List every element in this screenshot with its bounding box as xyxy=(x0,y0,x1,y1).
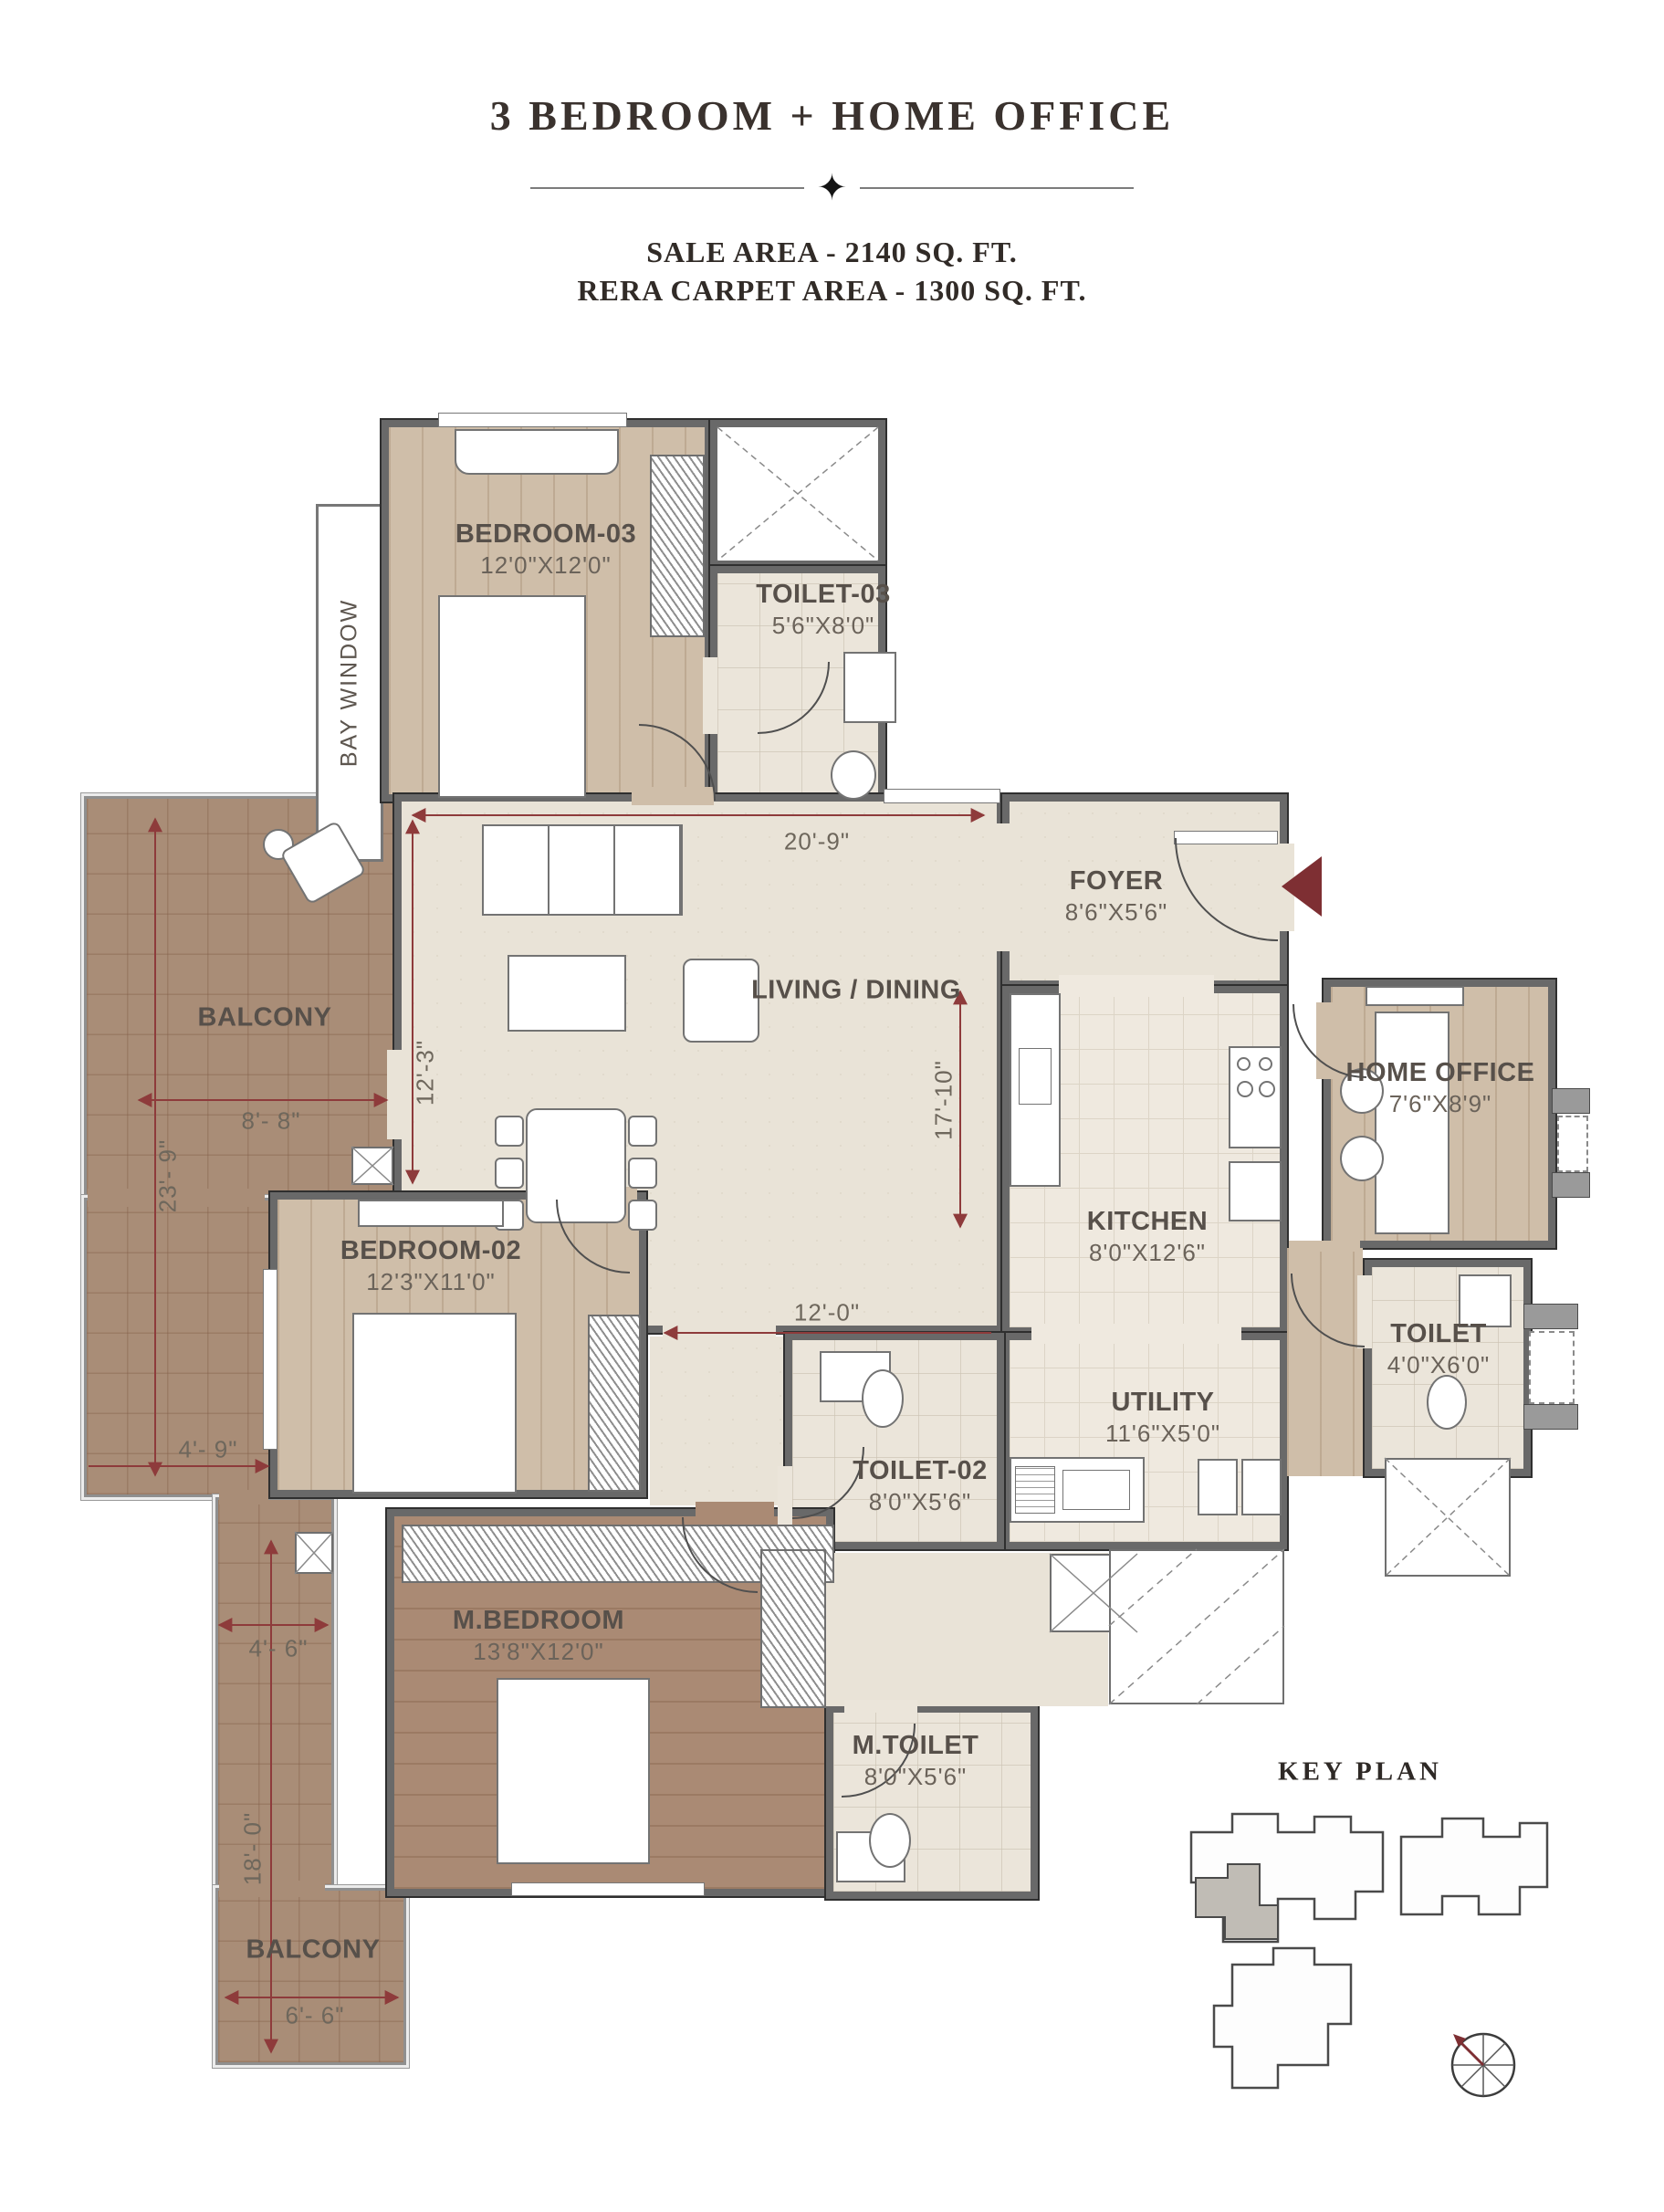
keyplan-building-3 xyxy=(1214,1948,1351,2088)
opening-foyer-kitchen xyxy=(1059,975,1214,997)
label-home-office: HOME OFFICE 7'6"X8'9" xyxy=(1346,1058,1535,1118)
wc-toilet2 xyxy=(862,1369,904,1428)
opening-home-office-door xyxy=(1316,1002,1333,1079)
room-name: BALCONY xyxy=(246,1935,381,1966)
washer xyxy=(1198,1459,1238,1515)
dining-chair xyxy=(628,1200,657,1231)
washer xyxy=(1241,1459,1282,1515)
room-name: TOILET-02 xyxy=(853,1456,987,1486)
dim-4-6: 4'- 6" xyxy=(249,1635,309,1663)
label-m-bedroom: M.BEDROOM 13'8"X12'0" xyxy=(453,1606,624,1666)
dim-18-0: 18'- 0" xyxy=(239,1812,267,1885)
compass-icon xyxy=(1452,2034,1514,2096)
room-size: 13'8"X12'0" xyxy=(453,1638,624,1666)
room-name: BEDROOM-02 xyxy=(340,1236,521,1266)
wall-stub-office-bottom xyxy=(1552,1172,1590,1198)
dim-8-8: 8'- 8" xyxy=(242,1107,301,1136)
opening-toilet-door xyxy=(1357,1275,1372,1348)
bed3 xyxy=(438,595,586,798)
duct-shaft-mbedroom xyxy=(295,1532,333,1574)
coffee-table xyxy=(508,955,626,1032)
label-toilet-02: TOILET-02 8'0"X5'6" xyxy=(853,1456,987,1516)
wardrobe-mbedroom-right xyxy=(760,1549,826,1708)
fridge xyxy=(1229,1161,1282,1221)
dining-chair xyxy=(495,1116,524,1147)
entry-door-leaf xyxy=(1174,831,1278,844)
label-bedroom-03: BEDROOM-03 12'0"X12'0" xyxy=(455,519,636,580)
sofa xyxy=(482,824,683,916)
room-name: TOILET xyxy=(1387,1319,1491,1349)
wc-toilet xyxy=(1427,1375,1467,1430)
opening-mtoilet-door xyxy=(844,1700,917,1713)
basin-toilet3 xyxy=(843,652,896,723)
room-size: 8'0"X12'6" xyxy=(1087,1239,1208,1267)
label-living-dining: LIVING / DINING xyxy=(751,976,961,1006)
office-chair xyxy=(1340,1136,1384,1181)
wall-stub-top xyxy=(1523,1304,1578,1329)
room-size: 5'6"X8'0" xyxy=(756,612,890,640)
title-divider: ✦ xyxy=(0,179,1664,197)
dim-6-6: 6'- 6" xyxy=(286,2002,345,2030)
kitchen-sink xyxy=(1019,1048,1052,1105)
armchair xyxy=(683,959,759,1043)
sale-area-text: SALE AREA - 2140 SQ. FT. xyxy=(0,236,1664,269)
label-kitchen: KITCHEN 8'0"X12'6" xyxy=(1087,1207,1208,1267)
dim-4-9: 4'- 9" xyxy=(179,1436,238,1464)
office-cabinet xyxy=(1366,986,1464,1006)
room-size: 4'0"X6'0" xyxy=(1387,1351,1491,1379)
room-name: M.TOILET xyxy=(853,1731,979,1761)
utility-sink xyxy=(1062,1470,1130,1510)
opening-kitchen-utility xyxy=(1031,1324,1241,1344)
window-living xyxy=(884,789,1000,803)
duct-shaft-balcony xyxy=(351,1147,393,1185)
dim-17-10: 17'-10" xyxy=(930,1060,958,1140)
opening-bedroom3-door xyxy=(632,787,714,805)
star-icon: ✦ xyxy=(817,179,848,197)
room-name: BEDROOM-03 xyxy=(455,519,636,550)
label-toilet: TOILET 4'0"X6'0" xyxy=(1387,1319,1491,1379)
ac-ledge-office xyxy=(1557,1116,1588,1172)
page-title: 3 BEDROOM + HOME OFFICE xyxy=(0,91,1664,140)
opening-mbedroom-door xyxy=(696,1502,774,1518)
master-bed xyxy=(497,1678,650,1864)
room-size: 8'6"X5'6" xyxy=(1065,898,1168,927)
room-size: 11'6"X5'0" xyxy=(1105,1420,1220,1448)
burner xyxy=(1237,1057,1251,1071)
open-terrace-hatch xyxy=(1109,1549,1284,1704)
keyplan-map xyxy=(1168,1791,1552,2102)
room-shower-toilet-03 xyxy=(710,420,885,568)
label-foyer: FOYER 8'6"X5'6" xyxy=(1065,866,1168,927)
label-balcony-left: BALCONY xyxy=(198,1003,332,1033)
dining-chair xyxy=(628,1158,657,1189)
dim-12-0: 12'-0" xyxy=(794,1299,860,1327)
wc-mtoilet xyxy=(869,1813,911,1868)
burner xyxy=(1259,1081,1275,1097)
burner xyxy=(1259,1057,1272,1071)
dim-23-9: 23'- 9" xyxy=(154,1139,183,1212)
label-bay-window: BAY WINDOW xyxy=(337,599,363,767)
room-balcony-bottom-wide xyxy=(215,1888,406,2065)
patch-balcony-join3 xyxy=(219,1490,268,1504)
bed3-headboard xyxy=(455,429,619,475)
opening-balcony-door xyxy=(387,1050,405,1139)
opening-main-entry xyxy=(1276,844,1294,931)
room-name: TOILET-03 xyxy=(756,580,890,610)
room-name: UTILITY xyxy=(1105,1388,1220,1418)
room-name: KITCHEN xyxy=(1087,1207,1208,1237)
room-size: 8'0"X5'6" xyxy=(853,1488,987,1516)
opening-living-foyer xyxy=(991,823,1015,951)
dining-chair xyxy=(495,1158,524,1189)
corridor-hall xyxy=(650,1337,783,1505)
wall-stub-bottom xyxy=(1523,1404,1578,1430)
ac-ledge xyxy=(1529,1331,1575,1404)
room-name: BALCONY xyxy=(198,1003,332,1033)
label-toilet-03: TOILET-03 5'6"X8'0" xyxy=(756,580,890,640)
label-bedroom-02: BEDROOM-02 12'3"X11'0" xyxy=(340,1236,521,1296)
burner xyxy=(1237,1081,1253,1097)
room-size: 12'3"X11'0" xyxy=(340,1268,521,1296)
utility-drainboard xyxy=(1015,1466,1055,1514)
room-name: FOYER xyxy=(1065,866,1168,896)
wardrobe-bedroom2 xyxy=(588,1315,641,1492)
office-desk xyxy=(1375,1012,1449,1234)
patch-balcony-join2 xyxy=(219,1881,325,1897)
wardrobe-bedroom3 xyxy=(650,455,705,637)
divider-line-left xyxy=(530,187,804,189)
dining-table xyxy=(526,1108,626,1223)
window-bedroom2 xyxy=(263,1269,277,1450)
window-bedroom3 xyxy=(438,413,627,427)
keyplan-building-2 xyxy=(1401,1819,1547,1914)
wc-toilet3 xyxy=(831,750,876,800)
keyplan-title: KEY PLAN xyxy=(1278,1757,1442,1787)
room-name: LIVING / DINING xyxy=(751,976,961,1006)
room-size: 7'6"X8'9" xyxy=(1346,1090,1535,1118)
window-mbedroom xyxy=(511,1882,705,1896)
opening-toilet3-door xyxy=(703,657,717,734)
room-size: 8'0"X5'6" xyxy=(853,1763,979,1791)
label-m-toilet: M.TOILET 8'0"X5'6" xyxy=(853,1731,979,1791)
dim-20-9: 20'-9" xyxy=(784,828,850,856)
bed2 xyxy=(352,1313,517,1494)
room-size: 12'0"X12'0" xyxy=(455,551,636,580)
label-balcony-bottom: BALCONY xyxy=(246,1935,381,1966)
room-name: M.BEDROOM xyxy=(453,1606,624,1636)
corridor-home-office xyxy=(1287,1248,1363,1476)
divider-line-right xyxy=(860,187,1134,189)
label-utility: UTILITY 11'6"X5'0" xyxy=(1105,1388,1220,1448)
opening-living-hall xyxy=(663,1322,776,1346)
wall-stub-office-top xyxy=(1552,1088,1590,1114)
dim-12-3: 12'-3" xyxy=(412,1040,440,1106)
bed2-headboard xyxy=(358,1200,504,1227)
dining-chair xyxy=(628,1116,657,1147)
room-name: HOME OFFICE xyxy=(1346,1058,1535,1088)
opening-office-corridor xyxy=(1289,1241,1360,1252)
rera-area-text: RERA CARPET AREA - 1300 SQ. FT. xyxy=(0,274,1664,308)
service-ledge-box xyxy=(1385,1458,1511,1577)
